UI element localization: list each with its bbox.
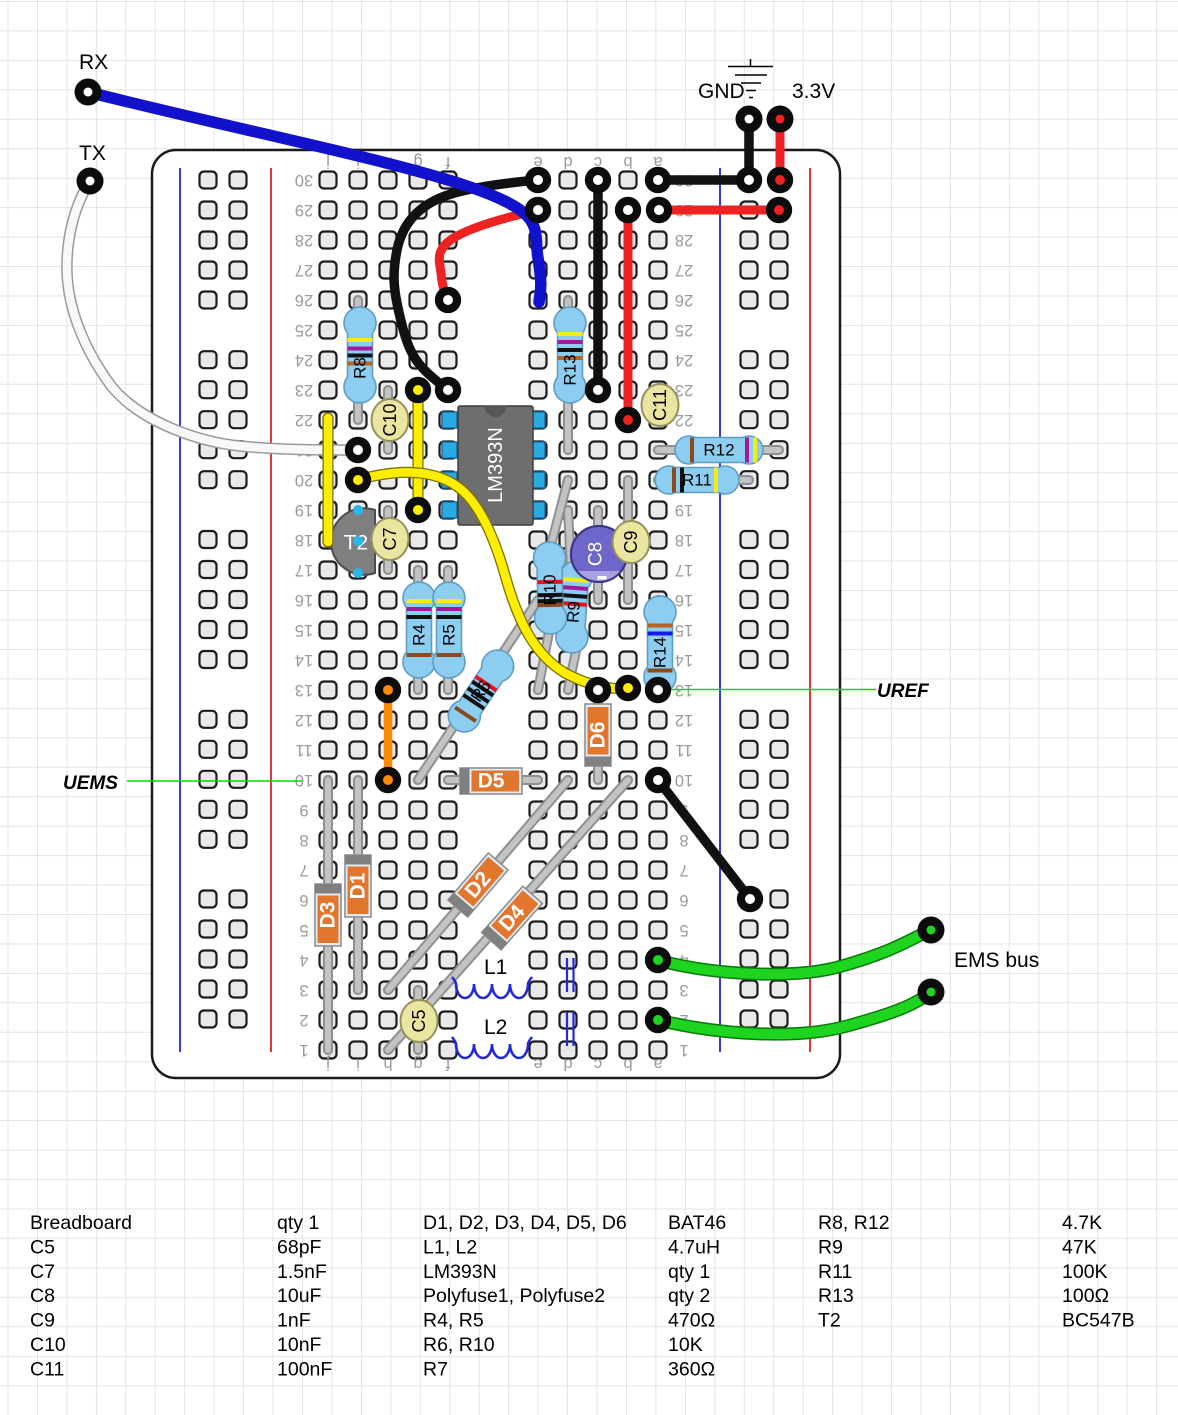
svg-text:C7: C7 [30, 1261, 55, 1283]
svg-text:1.5nF: 1.5nF [277, 1261, 327, 1283]
svg-text:BC547B: BC547B [1062, 1310, 1135, 1332]
svg-text:3: 3 [679, 981, 688, 999]
svg-text:EMS bus: EMS bus [954, 949, 1039, 972]
svg-text:68pF: 68pF [277, 1236, 322, 1258]
svg-text:6: 6 [299, 891, 308, 909]
svg-text:11: 11 [295, 741, 312, 759]
svg-text:100Ω: 100Ω [1062, 1285, 1109, 1307]
svg-text:C5: C5 [30, 1236, 55, 1258]
svg-text:4: 4 [299, 951, 308, 969]
svg-text:i: i [356, 1055, 360, 1073]
svg-text:R5: R5 [440, 624, 459, 646]
svg-text:R13: R13 [561, 354, 580, 385]
svg-text:4.7uH: 4.7uH [668, 1236, 720, 1258]
svg-text:g: g [413, 1055, 422, 1073]
svg-text:1: 1 [679, 1041, 688, 1059]
svg-text:9: 9 [299, 801, 308, 819]
svg-text:f: f [445, 1055, 450, 1073]
svg-text:C5: C5 [409, 1009, 429, 1032]
svg-text:26: 26 [295, 291, 313, 309]
svg-text:13: 13 [295, 681, 313, 699]
svg-text:23: 23 [295, 381, 313, 399]
svg-text:10nF: 10nF [277, 1334, 322, 1356]
svg-text:D6: D6 [587, 722, 610, 749]
svg-text:6: 6 [679, 891, 688, 909]
svg-text:470Ω: 470Ω [668, 1310, 715, 1332]
svg-text:L1, L2: L1, L2 [423, 1236, 477, 1258]
svg-text:15: 15 [295, 621, 313, 639]
svg-text:25: 25 [295, 321, 313, 339]
svg-text:LM393N: LM393N [423, 1261, 497, 1283]
svg-text:d: d [563, 1055, 572, 1073]
svg-text:24: 24 [295, 351, 313, 369]
svg-text:1nF: 1nF [277, 1310, 311, 1332]
svg-text:D1: D1 [347, 872, 370, 899]
svg-text:28: 28 [675, 231, 693, 249]
svg-text:19: 19 [295, 501, 313, 519]
svg-text:14: 14 [675, 651, 693, 669]
svg-text:c: c [594, 1055, 602, 1073]
svg-text:Polyfuse1, Polyfuse2: Polyfuse1, Polyfuse2 [423, 1285, 605, 1307]
svg-text:R4, R5: R4, R5 [423, 1310, 484, 1332]
svg-text:22: 22 [295, 411, 313, 429]
svg-text:27: 27 [295, 261, 313, 279]
svg-text:24: 24 [675, 351, 693, 369]
svg-text:R4: R4 [410, 624, 429, 646]
svg-text:5: 5 [679, 921, 688, 939]
svg-text:b: b [623, 1055, 632, 1073]
svg-text:20: 20 [295, 471, 313, 489]
svg-text:18: 18 [295, 531, 313, 549]
svg-text:R11: R11 [818, 1261, 852, 1283]
svg-text:8: 8 [299, 831, 308, 849]
svg-text:C7: C7 [380, 527, 400, 550]
svg-text:8: 8 [679, 831, 688, 849]
svg-text:R6, R10: R6, R10 [423, 1334, 495, 1356]
svg-text:D1, D2, D3, D4, D5, D6: D1, D2, D3, D4, D5, D6 [423, 1212, 627, 1234]
svg-text:d: d [563, 153, 572, 171]
svg-text:R11: R11 [682, 471, 712, 490]
svg-text:UEMS: UEMS [63, 773, 118, 794]
svg-text:28: 28 [295, 231, 313, 249]
svg-text:R10: R10 [540, 574, 560, 606]
svg-text:7: 7 [299, 861, 308, 879]
svg-text:R8, R12: R8, R12 [818, 1212, 890, 1234]
svg-text:7: 7 [679, 861, 688, 879]
svg-text:L2: L2 [484, 1016, 507, 1039]
svg-text:R8: R8 [351, 357, 370, 379]
svg-text:10: 10 [295, 771, 313, 789]
svg-text:LM393N: LM393N [485, 427, 507, 503]
svg-text:1: 1 [299, 1041, 308, 1059]
svg-text:16: 16 [295, 591, 313, 609]
svg-text:14: 14 [295, 651, 313, 669]
svg-text:3: 3 [299, 981, 308, 999]
svg-text:UREF: UREF [877, 681, 930, 702]
svg-text:16: 16 [675, 591, 693, 609]
svg-text:360Ω: 360Ω [668, 1358, 715, 1380]
svg-text:TX: TX [79, 142, 106, 165]
svg-text:BAT46: BAT46 [668, 1212, 726, 1234]
svg-text:11: 11 [675, 741, 692, 759]
svg-text:b: b [623, 153, 632, 171]
svg-text:C10: C10 [30, 1334, 66, 1356]
svg-text:2: 2 [299, 1011, 308, 1029]
svg-text:10uF: 10uF [277, 1285, 322, 1307]
svg-text:15: 15 [675, 621, 693, 639]
svg-text:R12: R12 [703, 441, 734, 460]
svg-text:C9: C9 [30, 1310, 55, 1332]
svg-text:10K: 10K [668, 1334, 703, 1356]
svg-text:C11: C11 [30, 1358, 64, 1380]
svg-text:qty 1: qty 1 [668, 1261, 710, 1283]
svg-text:L1: L1 [484, 956, 507, 979]
svg-text:10: 10 [675, 771, 693, 789]
svg-text:GND: GND [698, 80, 745, 103]
svg-text:C10: C10 [380, 403, 400, 436]
svg-text:j: j [326, 1055, 331, 1073]
svg-text:R13: R13 [818, 1285, 854, 1307]
svg-text:R14: R14 [651, 637, 670, 668]
svg-text:12: 12 [675, 711, 693, 729]
svg-text:D5: D5 [478, 770, 505, 793]
svg-text:26: 26 [675, 291, 693, 309]
svg-text:17: 17 [675, 561, 693, 579]
svg-text:qty 2: qty 2 [668, 1285, 710, 1307]
svg-text:100nF: 100nF [277, 1358, 332, 1380]
svg-text:C8: C8 [30, 1285, 55, 1307]
svg-text:5: 5 [299, 921, 308, 939]
svg-text:T2: T2 [818, 1310, 841, 1332]
svg-text:27: 27 [675, 261, 693, 279]
svg-text:j: j [326, 153, 331, 171]
svg-text:D3: D3 [317, 902, 340, 929]
svg-text:Breadboard: Breadboard [30, 1212, 132, 1234]
svg-text:f: f [445, 153, 450, 171]
svg-text:qty 1: qty 1 [277, 1212, 319, 1234]
svg-text:e: e [533, 1055, 542, 1073]
svg-text:RX: RX [79, 51, 108, 74]
svg-text:30: 30 [295, 171, 313, 189]
svg-text:47K: 47K [1062, 1236, 1097, 1258]
svg-text:C9: C9 [621, 530, 641, 553]
svg-text:17: 17 [295, 561, 313, 579]
svg-text:100K: 100K [1062, 1261, 1108, 1283]
svg-text:25: 25 [675, 321, 693, 339]
svg-text:3.3V: 3.3V [792, 80, 835, 103]
svg-text:12: 12 [295, 711, 313, 729]
svg-text:a: a [653, 1055, 663, 1073]
svg-text:C8: C8 [586, 542, 607, 566]
svg-text:C11: C11 [650, 389, 670, 421]
svg-text:h: h [383, 1055, 392, 1073]
svg-text:R7: R7 [423, 1358, 448, 1380]
svg-text:19: 19 [675, 501, 693, 519]
svg-text:R9: R9 [818, 1236, 843, 1258]
svg-text:29: 29 [295, 201, 313, 219]
svg-text:4.7K: 4.7K [1062, 1212, 1102, 1234]
svg-text:18: 18 [675, 531, 693, 549]
